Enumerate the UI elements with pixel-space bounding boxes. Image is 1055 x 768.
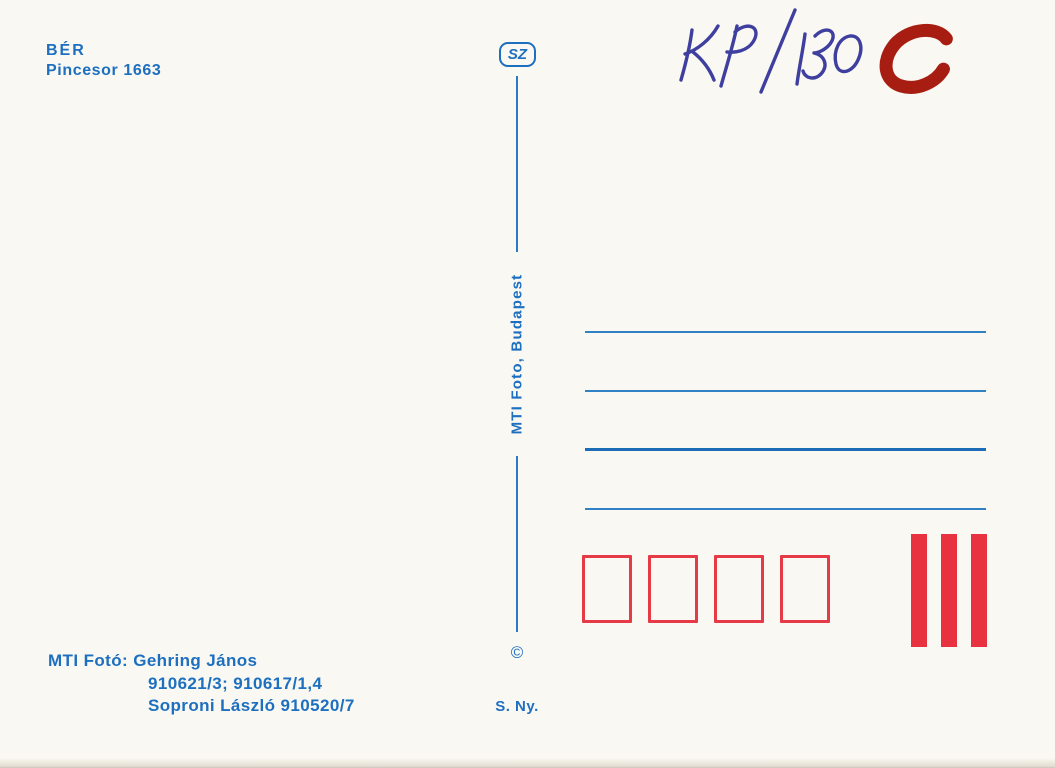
address-line: [585, 508, 986, 510]
credit-line-3: Soproni László 910520/7: [148, 696, 355, 716]
printer-mark: S. Ny.: [495, 698, 539, 715]
handwritten-grade: [869, 21, 962, 106]
postcode-box: [714, 555, 764, 623]
credit-line-2: 910621/3; 910617/1,4: [148, 674, 322, 694]
stamp-bar: [971, 534, 987, 647]
stamp-bar: [941, 534, 957, 647]
address-line: [585, 331, 986, 333]
sz-emblem-label: SZ: [508, 47, 527, 62]
publisher-subtitle: Pincesor 1663: [46, 62, 161, 80]
address-line: [585, 448, 986, 451]
credit-line-1: MTI Fotó: Gehring János: [48, 651, 257, 671]
postcode-box: [582, 555, 632, 623]
handwritten-code: [676, 6, 871, 103]
divider-line-bottom: [516, 456, 518, 632]
postcode-box: [780, 555, 830, 623]
stamp-bar: [911, 534, 927, 647]
divider-line-top: [516, 76, 518, 252]
publisher-title: BÉR: [46, 42, 86, 60]
sz-emblem: SZ: [499, 42, 536, 67]
copyright-symbol: ©: [511, 643, 524, 663]
address-line: [585, 390, 986, 392]
postcode-box: [648, 555, 698, 623]
handwritten-grade-stroke: [869, 21, 962, 101]
scan-edge-shadow: [0, 758, 1055, 768]
divider-imprint: MTI Foto, Budapest: [509, 244, 526, 464]
handwritten-code-strokes: [676, 6, 871, 98]
